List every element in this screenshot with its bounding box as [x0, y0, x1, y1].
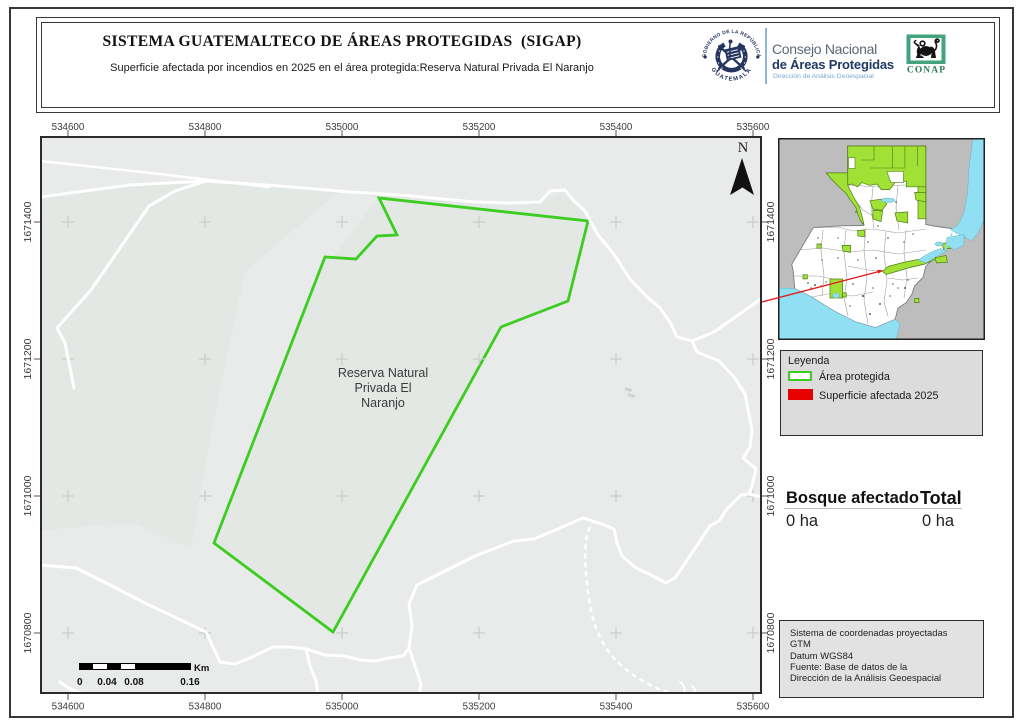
svg-text:Km: Km — [194, 663, 209, 674]
svg-text:0: 0 — [77, 677, 83, 688]
svg-text:CONAP: CONAP — [907, 65, 946, 73]
svg-text:0.08: 0.08 — [124, 677, 144, 688]
svg-text:Naranjo: Naranjo — [361, 396, 405, 410]
svg-text:Reserva Natural: Reserva Natural — [338, 366, 428, 380]
svg-text:0.04: 0.04 — [97, 677, 117, 688]
svg-text:N: N — [738, 140, 749, 156]
svg-text:Privada El: Privada El — [355, 381, 412, 395]
svg-text:0.16: 0.16 — [180, 677, 200, 688]
